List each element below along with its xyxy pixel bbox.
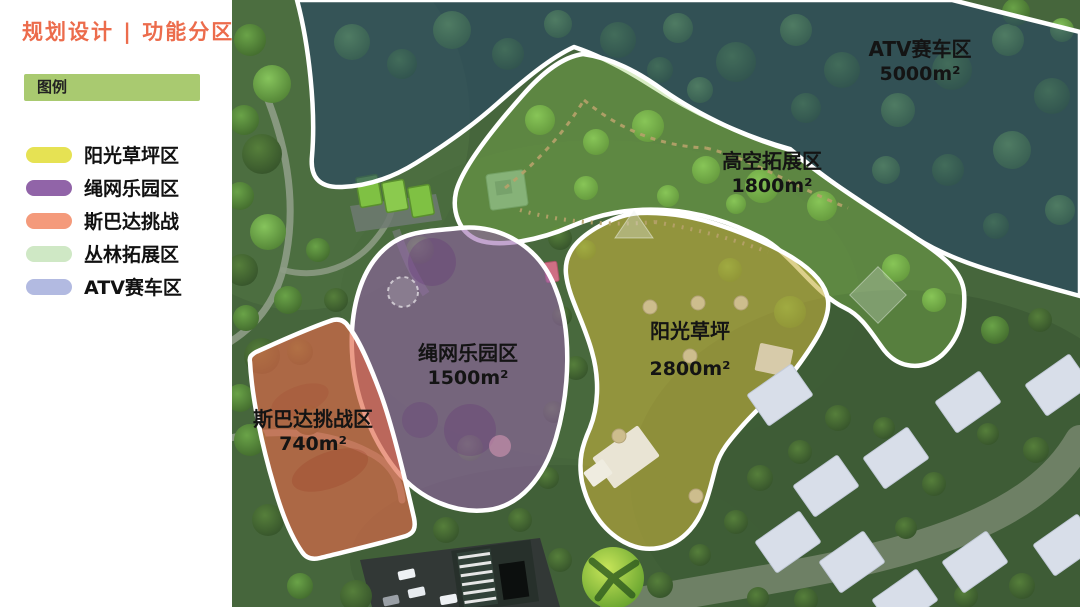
zone-name: 斯巴达挑战区 [253, 406, 373, 432]
legend-label: 斯巴达挑战 [84, 207, 179, 234]
slide: ATV赛车区 5000m² 高空拓展区 1800m² 绳网乐园区 1500m² … [0, 0, 1080, 607]
legend-item-atv: ATV赛车区 [26, 270, 182, 303]
legend: 阳光草坪区 绳网乐园区 斯巴达挑战 丛林拓展区 ATV赛车区 [26, 138, 182, 303]
legend-item-lawn: 阳光草坪区 [26, 138, 182, 171]
zone-name: ATV赛车区 [868, 36, 971, 62]
zone-label-lawn: 阳光草坪 2800m² [649, 318, 730, 382]
zone-label-spartan: 斯巴达挑战区 740m² [253, 406, 373, 457]
page-title: 规划设计 | 功能分区 [22, 16, 234, 46]
zone-area: 5000m² [868, 62, 971, 87]
legend-item-jungle: 丛林拓展区 [26, 237, 182, 270]
legend-swatch [26, 147, 72, 163]
zone-name: 阳光草坪 [649, 318, 730, 344]
zone-label-atv: ATV赛车区 5000m² [868, 36, 971, 87]
zone-area: 1800m² [722, 174, 822, 199]
zone-area: 740m² [253, 432, 373, 457]
legend-item-spartan: 斯巴达挑战 [26, 204, 182, 237]
zone-label-ropenet: 绳网乐园区 1500m² [418, 340, 518, 391]
legend-label: 丛林拓展区 [84, 240, 179, 267]
building [451, 540, 539, 607]
zone-name: 绳网乐园区 [418, 340, 518, 366]
zone-area: 2800m² [649, 357, 730, 382]
legend-swatch [26, 213, 72, 229]
zone-name: 高空拓展区 [722, 148, 822, 174]
legend-swatch [26, 180, 72, 196]
side-panel: 规划设计 | 功能分区 图例 阳光草坪区 绳网乐园区 斯巴达挑战 丛林拓展区 A… [0, 0, 232, 607]
balloon-tree-icon [582, 547, 644, 607]
legend-label: 绳网乐园区 [84, 174, 179, 201]
legend-header: 图例 [24, 74, 200, 101]
legend-item-ropenet: 绳网乐园区 [26, 171, 182, 204]
zone-area: 1500m² [418, 366, 518, 391]
legend-swatch [26, 279, 72, 295]
legend-label: ATV赛车区 [84, 273, 182, 300]
legend-swatch [26, 246, 72, 262]
zone-label-highrope: 高空拓展区 1800m² [722, 148, 822, 199]
legend-label: 阳光草坪区 [84, 141, 179, 168]
